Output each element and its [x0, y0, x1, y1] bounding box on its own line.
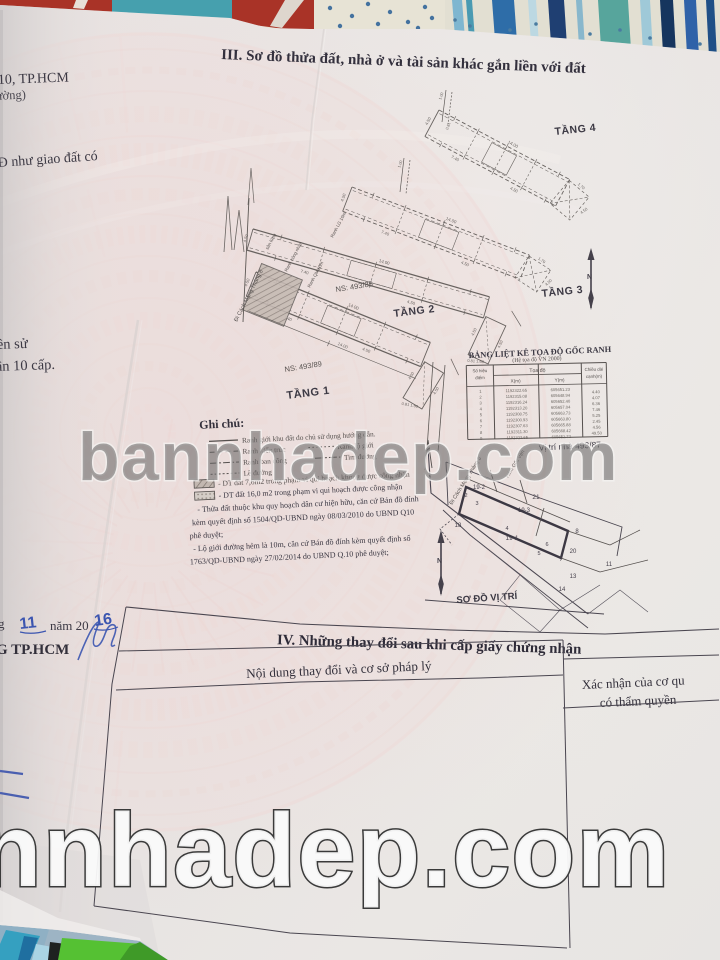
svg-text:605648.94: 605648.94: [551, 393, 571, 398]
svg-text:1192322.65: 1192322.65: [506, 388, 528, 393]
svg-text:5: 5: [537, 551, 540, 557]
svg-text:g: g: [0, 616, 5, 631]
svg-text:3: 3: [475, 501, 478, 507]
svg-text:nnhadep.com: nnhadep.com: [0, 793, 671, 909]
svg-text:605657.04: 605657.04: [551, 404, 571, 409]
svg-text:bannhadep.com: bannhadep.com: [78, 419, 619, 495]
svg-text:1192308.75: 1192308.75: [506, 411, 528, 416]
svg-text:cạnh(m): cạnh(m): [586, 374, 603, 379]
svg-text:605663.73: 605663.73: [551, 410, 571, 415]
svg-text:20: 20: [570, 549, 577, 555]
svg-text:điểm: điểm: [475, 375, 485, 380]
svg-text:ền sử: ền sử: [0, 336, 29, 353]
svg-text:4.07: 4.07: [592, 395, 601, 400]
svg-text:6.36: 6.36: [592, 401, 601, 406]
svg-text:ường): ường): [0, 87, 26, 103]
svg-text:1192316.24: 1192316.24: [506, 399, 528, 404]
svg-text:4.40: 4.40: [592, 389, 601, 394]
svg-text:4: 4: [505, 526, 508, 532]
svg-text:1192315.08: 1192315.08: [506, 394, 528, 399]
svg-text:11: 11: [606, 562, 613, 568]
svg-text:19-1: 19-1: [505, 535, 518, 542]
svg-text:Y(m): Y(m): [555, 377, 566, 382]
svg-text:G TP.HCM: G TP.HCM: [0, 642, 69, 658]
svg-text:5.25: 5.25: [592, 413, 601, 418]
svg-text:14: 14: [559, 587, 566, 593]
svg-text:X(m): X(m): [511, 378, 522, 383]
svg-text:16: 16: [93, 611, 113, 630]
svg-text:7: 7: [559, 557, 562, 563]
svg-text:605652.40: 605652.40: [551, 399, 571, 404]
svg-text:Tọa độ: Tọa độ: [529, 368, 545, 374]
svg-text:11: 11: [19, 614, 38, 633]
svg-text:Số hiệu: Số hiệu: [472, 368, 488, 373]
svg-text:phê duyệt;: phê duyệt;: [189, 530, 223, 541]
svg-text:N: N: [437, 558, 442, 565]
svg-text:19-3: 19-3: [518, 508, 531, 514]
svg-text:7.46: 7.46: [592, 407, 601, 412]
svg-text:6: 6: [545, 542, 548, 548]
svg-text:ận 10 cấp.: ận 10 cấp.: [0, 357, 55, 375]
svg-text:N: N: [587, 274, 592, 281]
svg-text:18: 18: [455, 523, 462, 529]
svg-text:10, TP.HCM: 10, TP.HCM: [0, 71, 70, 88]
svg-text:1192313.20: 1192313.20: [506, 405, 528, 410]
svg-text:605651.23: 605651.23: [551, 387, 571, 392]
svg-text:Chiều dài: Chiều dài: [585, 367, 604, 372]
svg-text:13: 13: [570, 574, 577, 580]
svg-text:21: 21: [532, 494, 540, 501]
svg-text:năm 20: năm 20: [50, 618, 89, 633]
